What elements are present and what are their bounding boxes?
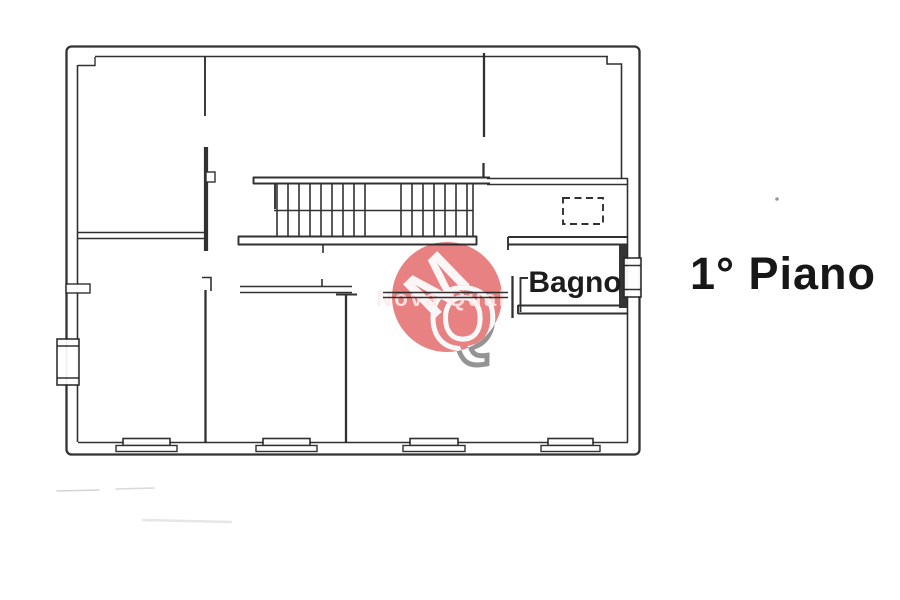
fixture-dashed-box — [563, 198, 603, 224]
wall-notch-top-left — [78, 57, 95, 66]
floor-plan-canvas: M Q Q Nova Qual — [0, 0, 900, 600]
interior-walls — [66, 53, 628, 443]
floor-title: 1° Piano — [690, 248, 876, 299]
window-left-wall — [57, 339, 79, 385]
window-bathroom — [624, 258, 641, 297]
outer-walls — [67, 47, 640, 455]
scan-artifacts — [57, 197, 779, 522]
watermark-text: Nova Qual — [376, 286, 507, 311]
wall-notch-top-right — [607, 57, 622, 179]
window-bottom-3 — [403, 439, 465, 452]
door-jamb — [202, 278, 211, 292]
window-bottom-4 — [541, 439, 600, 452]
floor-plan: M Q Q Nova Qual — [0, 0, 900, 600]
window-bottom-1 — [116, 439, 177, 452]
window-bottom-2 — [256, 439, 317, 452]
bathroom-door-jamb — [521, 278, 529, 312]
ink-speck — [775, 197, 779, 201]
room-label-bagno: Bagno — [528, 266, 621, 299]
left-wall-stub — [66, 284, 90, 293]
staircase — [238, 177, 490, 253]
door-jamb-stub — [206, 172, 215, 182]
watermark-logo: M Q Q Nova Qual — [376, 238, 507, 367]
